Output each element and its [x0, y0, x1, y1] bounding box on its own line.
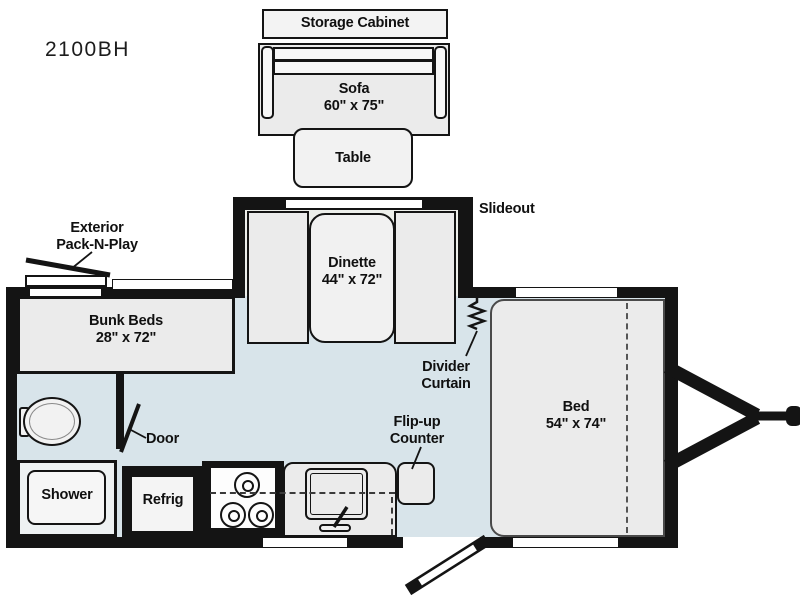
- refrigerator-frame: Refrig: [122, 466, 204, 537]
- sink: [305, 468, 368, 520]
- counter-dashed-line: [391, 497, 393, 535]
- flip-up-counter: [397, 462, 435, 505]
- window: [285, 199, 423, 209]
- storage-cabinet: Storage Cabinet: [262, 9, 448, 39]
- entry-grab-handle-inner: [420, 548, 475, 583]
- storage-cabinet-label: Storage Cabinet: [264, 15, 446, 32]
- bunk-beds-label: Bunk Beds 28" x 72": [20, 313, 232, 347]
- pack-n-play-lid: [26, 260, 110, 275]
- stove-burner: [248, 502, 274, 528]
- sofa-label: Sofa 60" x 75": [260, 81, 448, 115]
- dinette-bench-right: [394, 211, 456, 344]
- leader-line: [71, 252, 92, 269]
- table-label: Table: [295, 150, 411, 167]
- pack-n-play-hatch: [25, 275, 107, 287]
- pack-n-play-label: Exterior Pack-N-Play: [56, 220, 138, 254]
- stove: [209, 466, 277, 530]
- slideout-wall-right: [458, 197, 473, 301]
- sofa-back-cushion: [273, 60, 434, 75]
- bathroom-wall: [116, 372, 124, 449]
- slideout-label: Slideout: [479, 201, 535, 218]
- window: [516, 288, 617, 297]
- refrigerator-label: Refrig: [122, 492, 204, 509]
- window: [513, 538, 618, 547]
- shower-label: Shower: [20, 487, 114, 504]
- flip-up-counter-label: Flip-up Counter: [390, 414, 444, 448]
- entry-door-opening: [403, 537, 480, 548]
- shower: Shower: [17, 460, 117, 537]
- bed-dashed-line: [626, 303, 628, 533]
- counter-dashed-line: [210, 492, 395, 494]
- dinette-bench-left: [247, 211, 309, 344]
- window: [263, 538, 347, 547]
- floorplan-2100bh: 2100BH Storage Cabinet Sofa 60" x 75" Ta…: [0, 0, 800, 600]
- wall-right: [665, 287, 678, 548]
- toilet: [23, 397, 81, 446]
- model-number-label: 2100BH: [45, 38, 130, 62]
- stove-burner: [220, 502, 246, 528]
- window: [112, 279, 233, 290]
- door-label: Door: [146, 431, 179, 448]
- toilet-seat: [29, 403, 75, 440]
- table-front: Table: [293, 128, 413, 188]
- bunk-beds: Bunk Beds 28" x 72": [17, 296, 235, 374]
- divider-curtain-label: Divider Curtain: [421, 359, 470, 393]
- faucet: [319, 524, 351, 532]
- hitch-arm: [667, 418, 757, 466]
- stove-frame: [202, 461, 284, 537]
- hitch-arm: [667, 367, 757, 415]
- sink-basin: [310, 473, 363, 515]
- sofa-back-cushion: [273, 47, 434, 61]
- bed-label: Bed 54" x 74": [546, 399, 606, 433]
- stove-burner: [234, 472, 260, 498]
- dinette-label: Dinette 44" x 72": [322, 255, 382, 289]
- wall-left: [6, 287, 17, 548]
- hitch-coupler: [786, 406, 800, 426]
- sofa: Sofa 60" x 75": [258, 43, 450, 136]
- kitchen-counter: [283, 462, 397, 537]
